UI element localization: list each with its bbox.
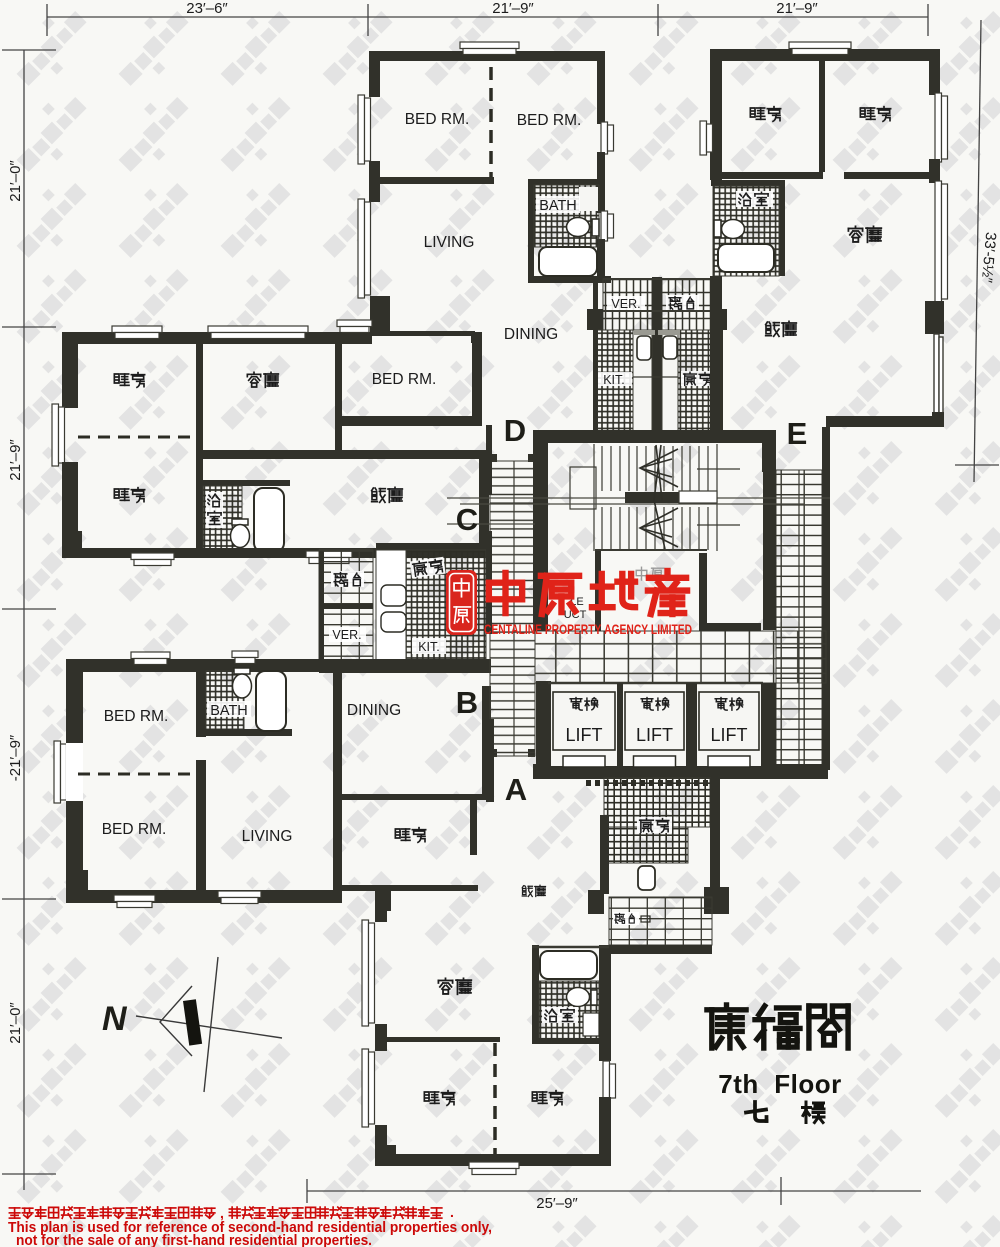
svg-text:KIT.: KIT. <box>418 640 440 654</box>
svg-text:.: . <box>450 1204 454 1220</box>
svg-text:A: A <box>505 772 527 807</box>
svg-text:LIFT: LIFT <box>636 725 673 745</box>
svg-text:C: C <box>456 502 478 537</box>
svg-text:BED RM.: BED RM. <box>405 111 470 128</box>
svg-text:21′–0″: 21′–0″ <box>7 160 24 202</box>
svg-text:21′–9″: 21′–9″ <box>776 0 818 17</box>
svg-text:B: B <box>456 685 478 720</box>
svg-text:BED RM.: BED RM. <box>102 821 167 838</box>
svg-text:21′–9″: 21′–9″ <box>7 439 24 481</box>
svg-text:BATH: BATH <box>539 198 577 214</box>
svg-text:DINING: DINING <box>504 326 558 343</box>
svg-text:,: , <box>220 1205 224 1221</box>
svg-text:N: N <box>102 1000 128 1038</box>
svg-text:not for the sale of any first-: not for the sale of any first-hand resid… <box>16 1233 372 1247</box>
svg-text:21′–0″: 21′–0″ <box>7 1002 24 1044</box>
svg-text:D: D <box>504 413 526 448</box>
svg-text:LIFT: LIFT <box>565 725 602 745</box>
svg-text:VER.: VER. <box>332 628 361 642</box>
svg-text:LIVING: LIVING <box>424 234 475 251</box>
svg-text:E: E <box>787 416 808 451</box>
svg-text:7th Floor: 7th Floor <box>718 1069 841 1099</box>
svg-text:VER.: VER. <box>611 297 640 311</box>
svg-text:23′–6″: 23′–6″ <box>186 0 228 17</box>
svg-text:KIT.: KIT. <box>603 373 625 387</box>
svg-text:BED RM.: BED RM. <box>517 112 582 129</box>
svg-text:CENTALINE PROPERTY AGENCY LIMI: CENTALINE PROPERTY AGENCY LIMITED <box>484 621 692 637</box>
svg-text:25′–9″: 25′–9″ <box>536 1195 578 1212</box>
svg-text:-21′–9″: -21′–9″ <box>7 734 24 781</box>
svg-text:BATH: BATH <box>210 703 248 719</box>
svg-text:LIVING: LIVING <box>242 828 293 845</box>
svg-text:BED RM.: BED RM. <box>104 708 169 725</box>
svg-text:21′–9″: 21′–9″ <box>492 0 534 17</box>
svg-text:DINING: DINING <box>347 702 401 719</box>
svg-text:BED RM.: BED RM. <box>372 371 437 388</box>
svg-text:LIFT: LIFT <box>710 725 747 745</box>
